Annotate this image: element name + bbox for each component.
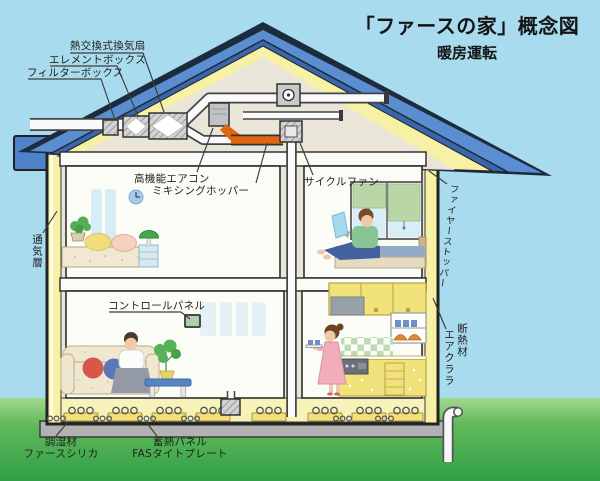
label-heat-storage: 蓄熱パネル FASタイトプレート: [132, 436, 228, 460]
page-title: 「ファースの家」概念図: [338, 10, 596, 39]
label-heat-storage-line1: 蓄熱パネル: [132, 436, 228, 448]
label-cycle-fan: サイクルファン: [304, 176, 379, 188]
roof-vent-fan: [277, 84, 300, 106]
label-insulation: 断熱材: [456, 323, 468, 358]
dish-shelf: [391, 313, 426, 343]
ceiling-band: [60, 152, 426, 166]
label-control-panel: コントロールパネル: [108, 300, 205, 312]
label-aircon: 高機能エアコン: [134, 173, 210, 185]
filter-box-unit: [103, 120, 118, 135]
element-box-unit: [123, 116, 149, 137]
label-element-box: エレメントボックス: [49, 54, 146, 66]
label-humidity-line1: 調湿材: [16, 436, 106, 448]
page-subtitle: 暖房運転: [338, 42, 596, 63]
label-filter-box: フィルターボックス: [27, 67, 124, 79]
kitchen-cabinets: [329, 283, 426, 315]
label-humidity-line2: ファースシリカ: [16, 448, 106, 460]
cycle-fan-unit: [280, 121, 302, 142]
bedside-lamp: [139, 231, 159, 267]
label-mixing-hopper: ミキシングホッパー: [152, 185, 249, 197]
label-ventilation-layer: 通気層: [31, 234, 43, 269]
heat-exchange-fan-unit: [149, 113, 187, 139]
stove: [341, 359, 368, 374]
wall-clock: [129, 190, 143, 204]
diagram-title-block: 「ファースの家」概念図 暖房運転: [338, 10, 596, 63]
label-humidity-material: 調湿材 ファースシリカ: [16, 436, 106, 460]
concept-diagram: 「ファースの家」概念図 暖房運転 熱交換式換気扇 エレメントボックス フィルター…: [0, 0, 600, 481]
label-heat-storage-line2: FASタイトプレート: [132, 448, 228, 460]
label-heat-exchange-fan: 熱交換式換気扇: [70, 40, 146, 52]
label-air-clara: エアクララ: [443, 329, 455, 387]
aircon-unit: [209, 103, 229, 126]
living-window: [200, 302, 266, 336]
